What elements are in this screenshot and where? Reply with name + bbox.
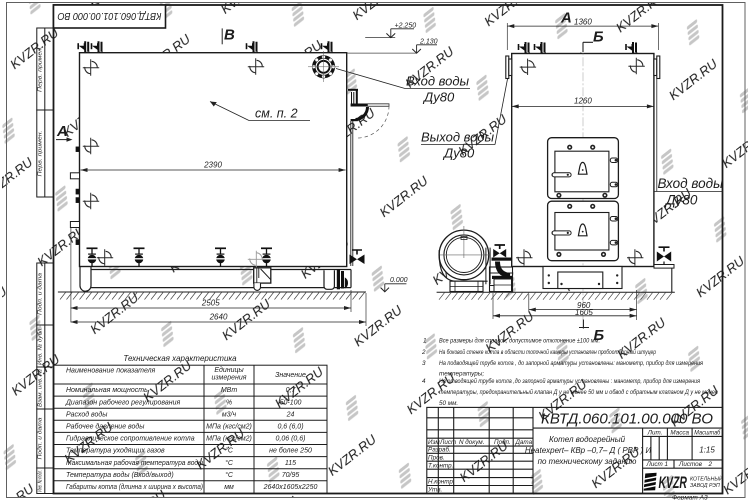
svg-text:Температура воды (Вход/выход): Температура воды (Вход/выход)	[66, 471, 174, 479]
svg-text:3: 3	[422, 360, 426, 367]
svg-text:Подп.: Подп.	[494, 438, 511, 446]
svg-text:N докум.: N докум.	[459, 438, 484, 446]
svg-text:КОТЕЛЬНЫЙ: КОТЕЛЬНЫЙ	[690, 475, 723, 483]
svg-text:На подводящей трубе котла , д: На подводящей трубе котла , до запорной …	[439, 359, 704, 367]
svg-text:КВТД.060.101.00.000 ВО: КВТД.060.101.00.000 ВО	[541, 411, 713, 428]
svg-text:Перв. примен.: Перв. примен.	[38, 131, 44, 177]
svg-text:Номинальная мощность: Номинальная мощность	[66, 387, 148, 394]
svg-text:температуры, предохранительный: температуры, предохранительный клапан Д …	[439, 388, 718, 396]
svg-text:2: 2	[421, 349, 426, 356]
svg-text:Инв. № подл.: Инв. № подл.	[38, 470, 44, 492]
svg-text:Лит.: Лит.	[647, 430, 663, 437]
svg-text:мм: мм	[224, 484, 234, 491]
svg-text:Температура уходящих газов: Температура уходящих газов	[66, 447, 165, 455]
svg-text:1: 1	[423, 338, 427, 345]
svg-text:Значение: Значение	[275, 372, 306, 379]
svg-text:1360: 1360	[574, 18, 592, 27]
svg-text:0.000: 0.000	[390, 277, 408, 284]
svg-text:1260: 1260	[574, 97, 592, 106]
svg-text:КВТД.060.101.00.000 ВО: КВТД.060.101.00.000 ВО	[57, 10, 161, 21]
svg-text:Утв.: Утв.	[427, 486, 442, 493]
svg-text:4: 4	[422, 378, 426, 385]
svg-text:Гидравлическое сопротивление к: Гидравлическое сопротивление котла	[66, 435, 195, 443]
svg-text:1:15: 1:15	[699, 445, 715, 454]
svg-text:Изм: Изм	[428, 439, 440, 446]
svg-text:измерения: измерения	[211, 375, 246, 382]
svg-text:На боковой стенке котла в обла: На боковой стенке котла в области топочн…	[439, 348, 656, 356]
svg-text:70/95: 70/95	[282, 472, 300, 479]
svg-text:Все размеры для справок, допус: Все размеры для справок, допустимое откл…	[439, 337, 600, 345]
svg-text:МПа (кгс/см2): МПа (кгс/см2)	[206, 424, 252, 431]
svg-text:2505: 2505	[201, 299, 220, 308]
svg-text:Вход воды: Вход воды	[658, 176, 724, 191]
svg-text:24: 24	[286, 411, 295, 418]
svg-text:Формат А3: Формат А3	[672, 495, 708, 500]
svg-text:1: 1	[665, 461, 669, 468]
svg-text:Диапазон рабочего регулировани: Диапазон рабочего регулирования	[65, 398, 181, 406]
svg-text:Б: Б	[593, 29, 604, 46]
svg-text:А: А	[56, 123, 68, 140]
svg-text:МВт: МВт	[221, 387, 238, 394]
svg-text:Пров.: Пров.	[428, 454, 445, 461]
svg-text:Разраб.: Разраб.	[428, 446, 451, 454]
svg-text:°С: °С	[225, 447, 234, 455]
svg-text:2390: 2390	[203, 161, 222, 170]
svg-text:Лист: Лист	[439, 439, 456, 446]
svg-text:0,6 (6,0): 0,6 (6,0)	[277, 424, 303, 431]
svg-text:KVZR: KVZR	[659, 473, 688, 492]
svg-text:Ду80: Ду80	[442, 146, 475, 161]
svg-text:Подп. и дата: Подп. и дата	[38, 417, 44, 460]
svg-text:температуры;: температуры;	[439, 371, 484, 378]
svg-text:Наименование показателя: Наименование показателя	[66, 368, 156, 375]
svg-text:Масштаб: Масштаб	[694, 429, 720, 437]
svg-text:Максимальная рабочая температу: Максимальная рабочая температура воды	[66, 459, 204, 467]
svg-text:Н.контр.: Н.контр.	[428, 479, 455, 486]
svg-text:Перв. примен.: Перв. примен.	[38, 46, 44, 92]
svg-text:0,06 (0,6): 0,06 (0,6)	[276, 436, 306, 443]
svg-text:Подп. и дата: Подп. и дата	[38, 272, 44, 315]
svg-text:На отводящей трубе котла ,до з: На отводящей трубе котла ,до запорной ар…	[439, 377, 701, 385]
svg-text:Расход воды: Расход воды	[66, 410, 108, 418]
svg-text:Единицы: Единицы	[214, 366, 244, 374]
svg-text:МПа (кгс/см2): МПа (кгс/см2)	[206, 436, 252, 443]
svg-text:Т.контр.: Т.контр.	[428, 462, 453, 469]
svg-text:В: В	[224, 27, 235, 44]
svg-text:Выход воды: Выход воды	[421, 130, 495, 145]
svg-text:°С: °С	[225, 471, 234, 479]
svg-text:м3/ч: м3/ч	[222, 411, 237, 418]
svg-text:0,7: 0,7	[286, 387, 297, 394]
svg-text:Масса: Масса	[670, 430, 689, 437]
svg-text:2640: 2640	[209, 313, 228, 322]
svg-text:Вход воды: Вход воды	[406, 74, 470, 89]
svg-text:2: 2	[708, 461, 713, 468]
svg-text:2640х1605х2250: 2640х1605х2250	[263, 484, 318, 491]
svg-text:по техническому заданию: по техническому заданию	[538, 457, 637, 466]
svg-text:115: 115	[285, 460, 296, 467]
svg-text:Лист: Лист	[646, 461, 663, 468]
svg-text:50-100: 50-100	[280, 399, 302, 406]
svg-text:50 мм.: 50 мм.	[439, 400, 458, 407]
svg-text:+2.250: +2.250	[395, 23, 417, 30]
svg-text:Рабочее давление воды: Рабочее давление воды	[66, 423, 145, 431]
svg-text:2.130: 2.130	[419, 39, 438, 46]
svg-text:Взам. инв. №: Взам. инв. №	[38, 369, 44, 407]
svg-text:Ду80: Ду80	[422, 90, 455, 105]
svg-text:Техническая характеристика: Техническая характеристика	[123, 354, 237, 363]
svg-text:Инв. № дубл.: Инв. № дубл.	[38, 327, 44, 365]
svg-text:не более 250: не более 250	[269, 447, 312, 455]
svg-text:Ду80: Ду80	[664, 193, 698, 208]
svg-text:%: %	[226, 399, 232, 406]
svg-text:А: А	[560, 10, 572, 27]
svg-text:1605: 1605	[575, 308, 593, 317]
svg-text:ЗАВОД РЭП: ЗАВОД РЭП	[690, 483, 720, 489]
svg-text:Heatexpert– КВр –0,7– Д ( РВР: Heatexpert– КВр –0,7– Д ( РВР ) И	[525, 446, 652, 455]
svg-text:см. п. 2: см. п. 2	[255, 107, 298, 121]
svg-text:Габариты котла (длинна х ширин: Габариты котла (длинна х ширина х высота…	[66, 483, 203, 491]
svg-text:Листов: Листов	[678, 461, 703, 468]
svg-text:°С: °С	[225, 459, 234, 467]
svg-text:Котел водогрейный: Котел водогрейный	[549, 435, 626, 444]
